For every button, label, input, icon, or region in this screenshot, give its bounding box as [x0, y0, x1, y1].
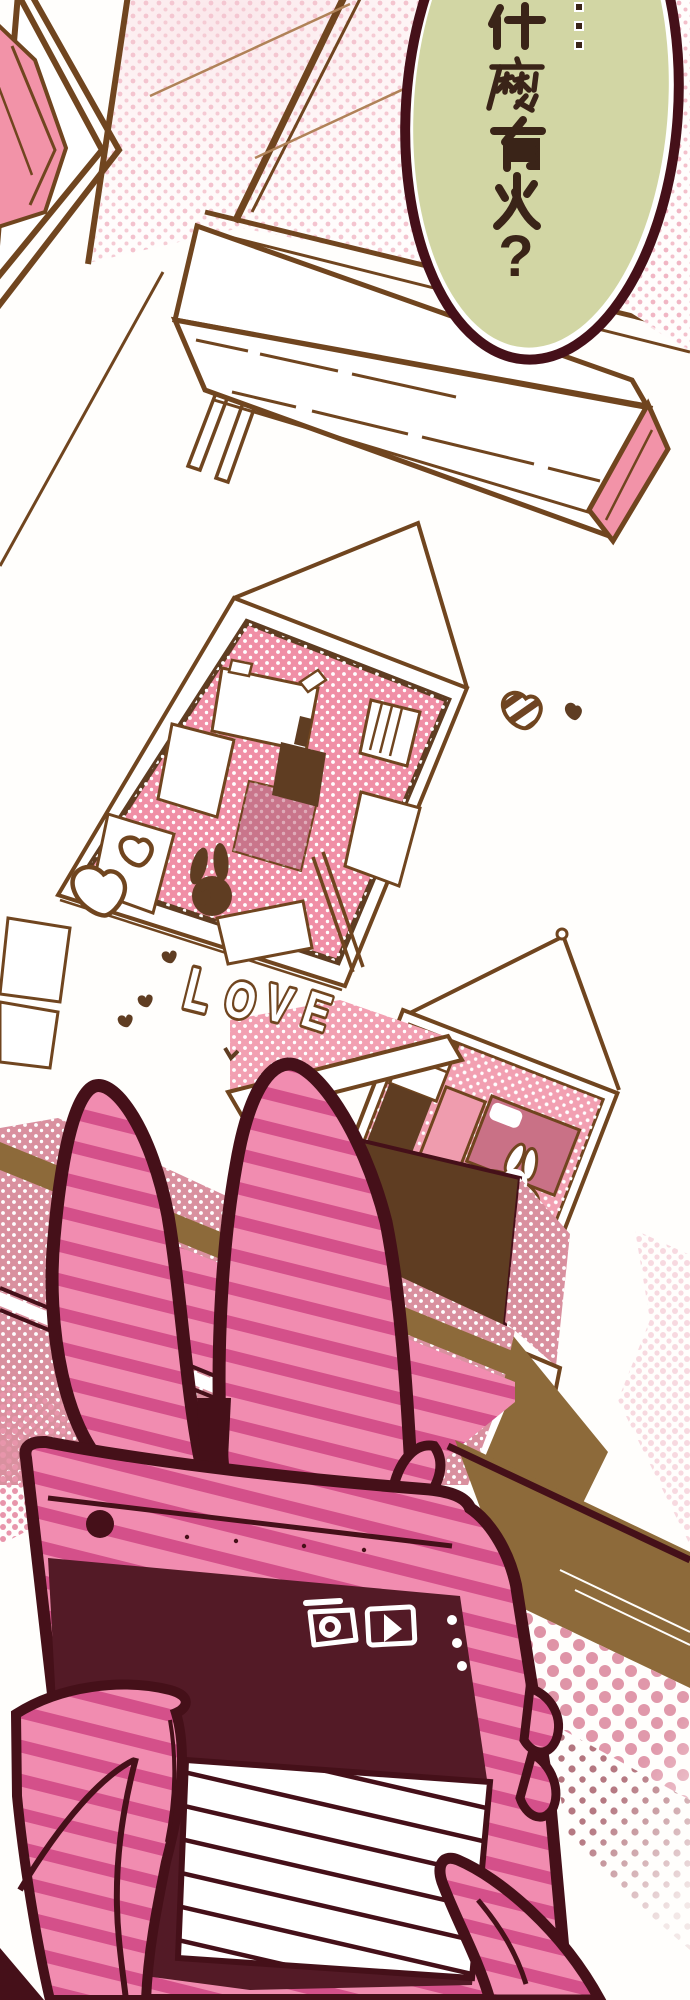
svg-text:?: ?	[498, 224, 533, 289]
